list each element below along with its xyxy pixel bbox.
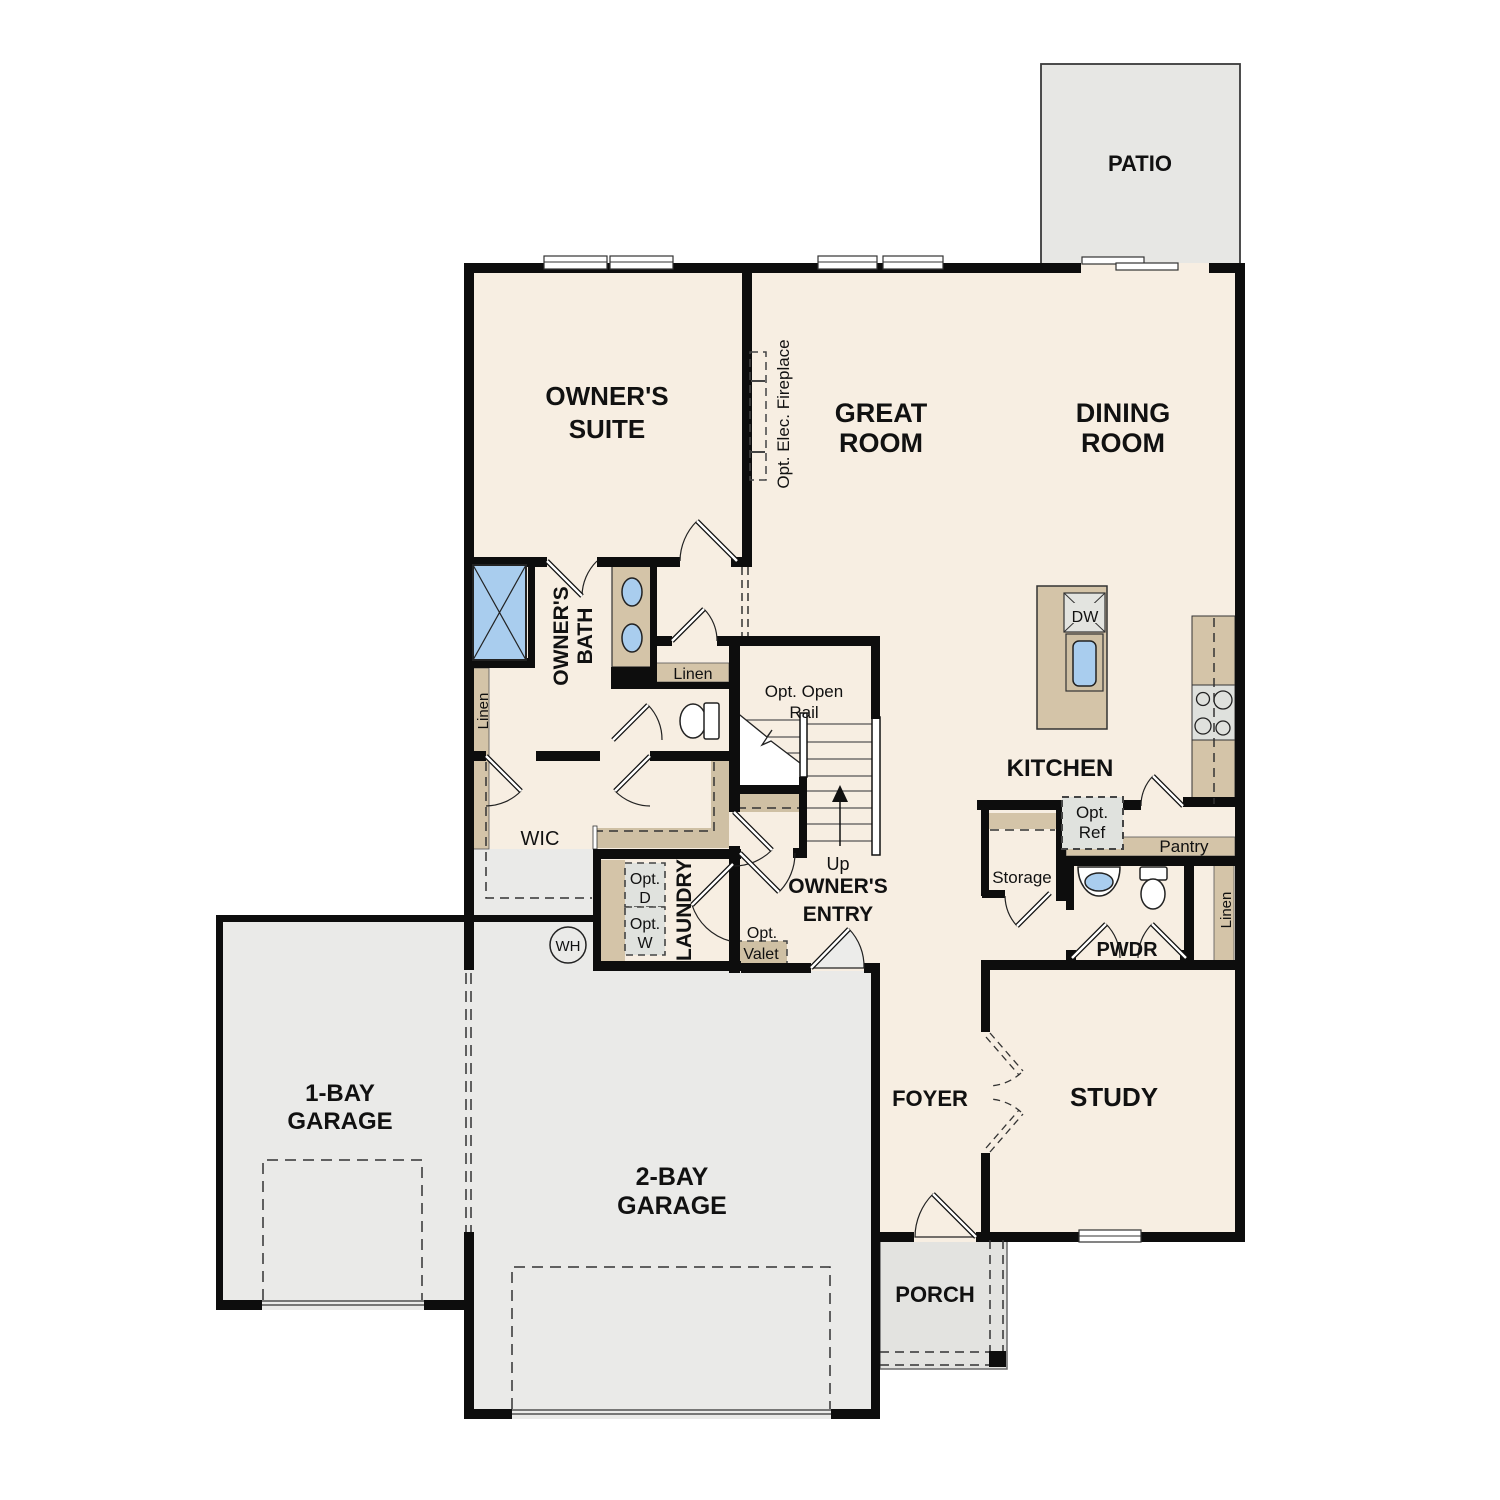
svg-text:Pantry: Pantry (1159, 837, 1209, 856)
svg-text:FOYER: FOYER (892, 1086, 968, 1111)
svg-text:Opt.: Opt. (747, 925, 777, 942)
svg-text:Linen: Linen (1218, 892, 1235, 929)
svg-text:Linen: Linen (673, 666, 712, 683)
svg-text:LAUNDRY: LAUNDRY (673, 859, 696, 961)
svg-text:OWNER'S: OWNER'S (788, 875, 888, 898)
svg-text:GARAGE: GARAGE (287, 1108, 392, 1135)
svg-text:DW: DW (1072, 609, 1100, 626)
svg-text:Up: Up (826, 854, 849, 874)
svg-text:WIC: WIC (521, 828, 560, 850)
svg-text:GARAGE: GARAGE (617, 1192, 727, 1220)
svg-text:Opt. Elec. Fireplace: Opt. Elec. Fireplace (774, 339, 793, 488)
svg-text:Ref: Ref (1079, 823, 1106, 842)
svg-text:2-BAY: 2-BAY (636, 1163, 709, 1191)
svg-text:OWNER'S: OWNER'S (545, 381, 668, 411)
svg-text:ROOM: ROOM (839, 428, 923, 458)
svg-text:PORCH: PORCH (895, 1282, 974, 1307)
svg-text:1-BAY: 1-BAY (305, 1080, 375, 1107)
svg-text:BATH: BATH (574, 608, 597, 665)
svg-text:Rail: Rail (789, 703, 818, 722)
svg-text:Valet: Valet (743, 946, 779, 963)
svg-text:SUITE: SUITE (569, 414, 646, 444)
svg-text:KITCHEN: KITCHEN (1007, 755, 1114, 782)
svg-text:WH: WH (556, 938, 581, 955)
svg-text:Storage: Storage (992, 868, 1052, 887)
svg-text:OWNER'S: OWNER'S (550, 586, 573, 686)
svg-text:Opt.: Opt. (630, 916, 660, 933)
svg-text:PATIO: PATIO (1108, 151, 1172, 176)
svg-text:ROOM: ROOM (1081, 428, 1165, 458)
svg-text:Linen: Linen (475, 693, 492, 730)
svg-text:Opt.: Opt. (630, 871, 660, 888)
svg-text:Opt. Open: Opt. Open (765, 682, 843, 701)
svg-text:D: D (639, 890, 651, 907)
svg-text:STUDY: STUDY (1070, 1082, 1158, 1112)
svg-text:Opt.: Opt. (1076, 803, 1108, 822)
svg-text:W: W (637, 935, 653, 952)
svg-text:DINING: DINING (1076, 398, 1171, 428)
svg-text:GREAT: GREAT (835, 398, 928, 428)
svg-text:ENTRY: ENTRY (803, 903, 873, 926)
svg-text:PWDR: PWDR (1096, 939, 1158, 961)
